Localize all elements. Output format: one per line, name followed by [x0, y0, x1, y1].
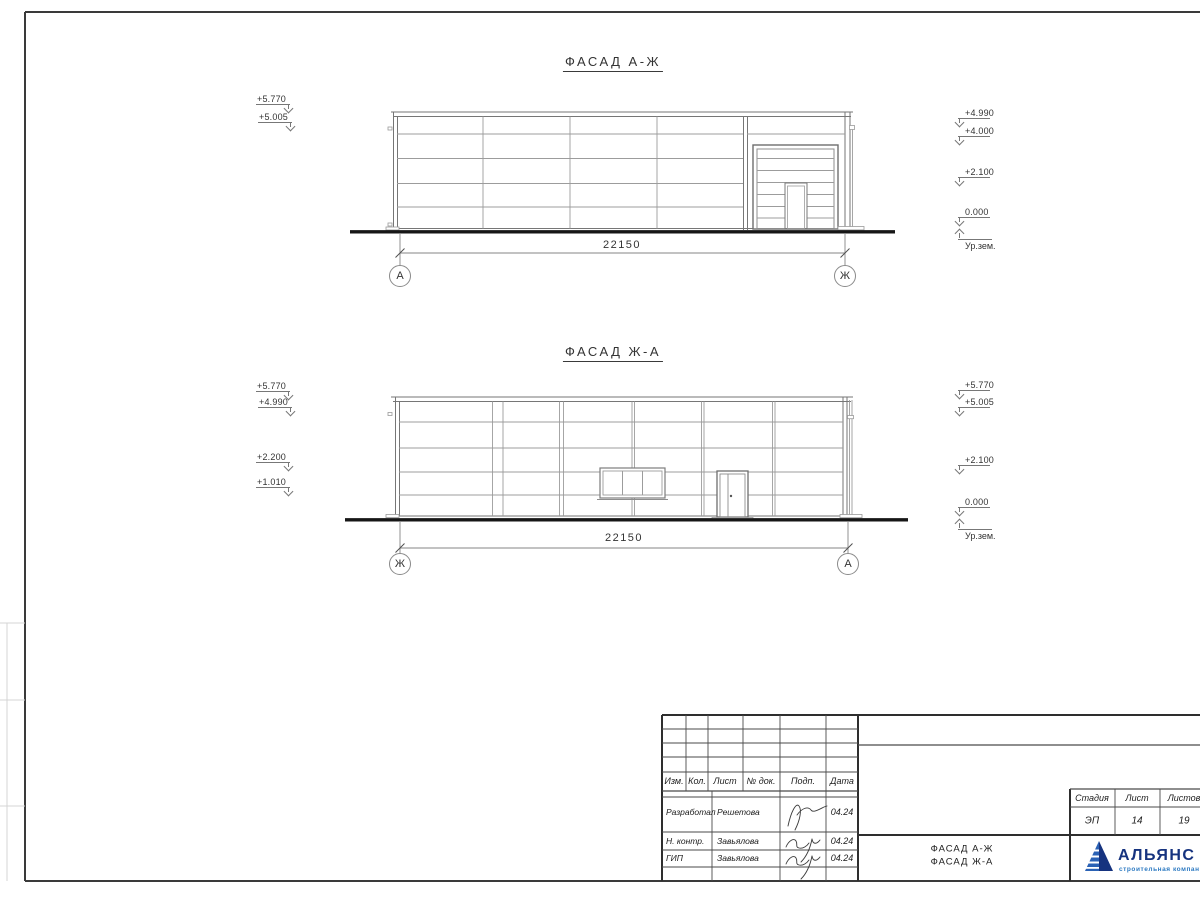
- facade-zh-a-linework: [345, 397, 908, 553]
- elevation-mark: +2.200: [256, 450, 290, 463]
- col-header-podp: Подп.: [791, 776, 815, 786]
- elevation-mark: +5.005: [958, 395, 990, 408]
- elevation-mark: +5.005: [258, 110, 292, 123]
- sheet-header: Лист: [1125, 793, 1148, 803]
- drawing-name-line2: ФАСАД Ж-А: [931, 857, 994, 868]
- elevation-arrow-icon: [284, 462, 293, 471]
- elevation-arrow-icon: [284, 487, 293, 496]
- stage-value: ЭП: [1085, 816, 1099, 827]
- alliance-pyramid-icon: [1084, 841, 1113, 871]
- dimension-label: 22150: [605, 532, 643, 544]
- dimension-label: 22150: [603, 239, 641, 251]
- row-date: 04.24: [831, 807, 854, 817]
- elevation-value: +5.770: [257, 381, 286, 391]
- elevation-value: +5.770: [257, 94, 286, 104]
- elevation-arrow-icon: [955, 136, 964, 145]
- company-tagline: строительная компания: [1119, 866, 1200, 873]
- elevation-value: 0.000: [965, 207, 989, 217]
- elevation-arrow-icon: [955, 177, 964, 186]
- elevation-value: +5.005: [965, 397, 994, 407]
- elevation-mark: +2.100: [958, 453, 990, 466]
- elevation-mark: +4.990: [258, 395, 292, 408]
- elevation-arrow-icon: [286, 407, 295, 416]
- sheet-value: 14: [1131, 816, 1142, 827]
- facade-title: ФАСАД А-Ж: [563, 54, 663, 72]
- drawing-name-line1: ФАСАД А-Ж: [931, 844, 994, 855]
- axis-bubble-right: Ж: [834, 265, 856, 287]
- elevation-value: +4.990: [965, 108, 994, 118]
- elevation-mark: +4.990: [958, 106, 990, 119]
- row-role: Разработал: [666, 807, 716, 817]
- elevation-mark: +4.000: [958, 124, 990, 137]
- axis-bubble-left: А: [389, 265, 411, 287]
- col-header-doc: № док.: [747, 776, 776, 786]
- elevation-value: +1.010: [257, 477, 286, 487]
- sheets-header: Листов: [1168, 793, 1200, 803]
- ground-level-line: [958, 239, 992, 240]
- elevation-value: +5.770: [965, 380, 994, 390]
- elevation-mark: +1.010: [256, 475, 290, 488]
- facade-title: ФАСАД Ж-А: [563, 344, 663, 362]
- ground-level-label: Ур.зем.: [965, 241, 996, 251]
- axis-letter: А: [396, 270, 403, 282]
- sheet-frame: [25, 12, 1200, 881]
- row-role: ГИП: [666, 853, 683, 863]
- row-name: Завьялова: [717, 853, 759, 863]
- elevation-mark: +5.770: [256, 92, 290, 105]
- elevation-value: +2.100: [965, 455, 994, 465]
- elevation-value: +4.000: [965, 126, 994, 136]
- row-date: 04.24: [831, 853, 854, 863]
- row-role: Н. контр.: [666, 836, 704, 846]
- axis-letter: Ж: [395, 558, 405, 570]
- elevation-value: +2.200: [257, 452, 286, 462]
- elevation-value: +2.100: [965, 167, 994, 177]
- elevation-mark: +5.770: [256, 379, 290, 392]
- col-header-list: Лист: [713, 776, 736, 786]
- left-margin-cells: [0, 623, 25, 881]
- row-name: Решетова: [717, 807, 760, 817]
- elevation-mark: 0.000: [958, 495, 990, 508]
- sheets-value: 19: [1178, 816, 1189, 827]
- col-header-data: Дата: [830, 776, 854, 786]
- row-name: Завьялова: [717, 836, 759, 846]
- window: [597, 468, 668, 500]
- elevation-arrow-icon: [955, 228, 964, 237]
- elevation-mark: +2.100: [958, 165, 990, 178]
- elevation-arrow-icon: [955, 407, 964, 416]
- axis-bubble-left: Ж: [389, 553, 411, 575]
- axis-letter: Ж: [840, 270, 850, 282]
- stage-header: Стадия: [1075, 793, 1109, 803]
- ground-level-mark: Ур.зем.: [958, 515, 994, 543]
- row-date: 04.24: [831, 836, 854, 846]
- ground-level-line: [958, 529, 992, 530]
- elevation-arrow-icon: [286, 122, 295, 131]
- ground-level-label: Ур.зем.: [965, 531, 996, 541]
- elevation-mark: +5.770: [958, 378, 990, 391]
- elevation-arrow-icon: [955, 465, 964, 474]
- entrance-door: [712, 471, 753, 520]
- col-header-izm: Изм.: [664, 776, 683, 786]
- axis-bubble-right: А: [837, 553, 859, 575]
- elevation-mark: 0.000: [958, 205, 990, 218]
- ground-level-mark: Ур.зем.: [958, 225, 994, 253]
- sectional-gate: [753, 145, 838, 229]
- elevation-value: +4.990: [259, 397, 288, 407]
- drawing-linework: [0, 0, 1200, 900]
- col-header-kol: Кол.: [688, 776, 706, 786]
- signatures: [786, 805, 827, 879]
- axis-letter: А: [844, 558, 851, 570]
- elevation-arrow-icon: [955, 518, 964, 527]
- elevation-value: +5.005: [259, 112, 288, 122]
- drawing-sheet: ФАСАД А-Ж 22150 А Ж +5.770 +5.005 +4.990…: [0, 0, 1200, 900]
- elevation-value: 0.000: [965, 497, 989, 507]
- company-name: АЛЬЯНС: [1118, 847, 1195, 865]
